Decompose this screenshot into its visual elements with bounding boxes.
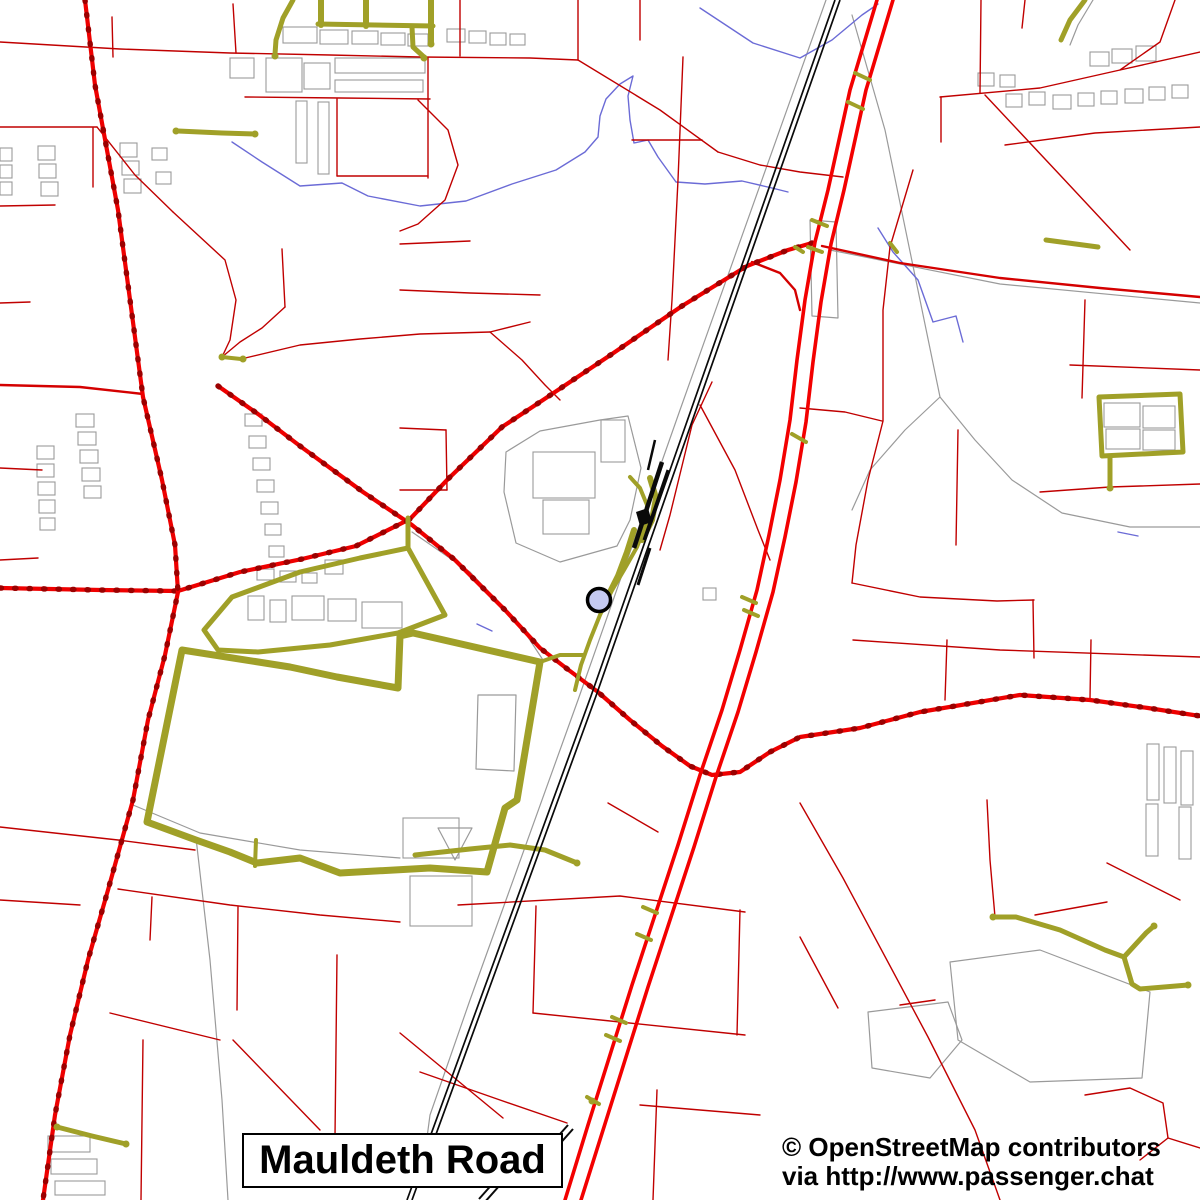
building-outline — [0, 182, 12, 195]
building-outline — [265, 524, 281, 535]
marker-layer — [588, 589, 611, 612]
building-outline — [248, 596, 264, 620]
attribution-line1: © OpenStreetMap contributors — [782, 1133, 1161, 1162]
building-outline — [41, 182, 58, 196]
building-outline — [601, 420, 625, 462]
building-outline — [122, 161, 139, 175]
station-marker[interactable] — [588, 589, 611, 612]
building-outline — [302, 573, 317, 583]
building-outline — [249, 436, 266, 448]
building-outline — [381, 33, 405, 45]
building-outline — [1006, 94, 1022, 107]
building-outline — [1104, 403, 1140, 427]
building-outline — [328, 599, 356, 621]
building-outline — [84, 486, 101, 498]
building-outline — [257, 480, 274, 492]
building-outline — [1172, 85, 1188, 98]
building-outline — [1146, 804, 1158, 856]
building-outline — [124, 179, 141, 193]
building-outline — [39, 164, 56, 178]
building-outline — [39, 500, 55, 513]
building-outline — [296, 101, 307, 163]
map-viewport[interactable]: Mauldeth Road © OpenStreetMap contributo… — [0, 0, 1200, 1200]
olive-paths-layer — [54, 0, 1192, 1148]
building-outline — [82, 468, 100, 481]
building-outline — [1090, 52, 1109, 66]
building-outline — [510, 34, 525, 45]
building-outline — [490, 33, 506, 45]
building-outline — [1179, 807, 1191, 859]
building-outline — [1106, 429, 1140, 449]
building-outline — [352, 31, 378, 44]
building-outline — [269, 546, 284, 557]
building-outline — [1000, 75, 1015, 87]
building-outline — [1136, 46, 1156, 61]
building-outline — [51, 1159, 97, 1174]
building-outline — [1112, 49, 1132, 63]
building-outline — [1143, 430, 1175, 450]
building-outline — [320, 30, 348, 44]
attribution: © OpenStreetMap contributors via http://… — [782, 1133, 1161, 1191]
attribution-line2: via http://www.passenger.chat — [782, 1162, 1161, 1191]
building-outline — [37, 446, 54, 459]
building-outline — [261, 502, 278, 514]
building-outline — [1078, 93, 1094, 106]
building-outline — [1149, 87, 1165, 100]
building-outline — [1143, 406, 1175, 428]
building-outline — [76, 414, 94, 427]
building-outline — [410, 876, 472, 926]
building-outline — [55, 1181, 105, 1195]
building-outline — [253, 458, 270, 470]
map-title-label: Mauldeth Road — [242, 1133, 563, 1188]
building-outline — [335, 58, 425, 73]
building-outline — [270, 600, 286, 622]
building-outline — [152, 148, 167, 160]
building-outline — [230, 58, 254, 78]
building-outline — [80, 450, 98, 463]
building-outline — [335, 80, 423, 92]
building-outline — [703, 588, 716, 600]
building-outline — [40, 518, 55, 530]
map-canvas[interactable] — [0, 0, 1200, 1200]
building-outline — [1125, 89, 1143, 103]
building-outline — [543, 500, 589, 534]
building-outline — [156, 172, 171, 184]
building-outline — [318, 102, 329, 174]
building-outline — [469, 31, 486, 43]
building-outline — [78, 432, 96, 445]
building-outline — [304, 63, 330, 89]
building-outline — [362, 602, 402, 628]
building-outline — [292, 596, 324, 620]
gray-paths-layer — [133, 0, 1200, 1200]
building-outline — [38, 482, 55, 495]
building-outline — [1053, 95, 1071, 109]
building-outline — [38, 146, 55, 160]
building-outline — [266, 58, 302, 92]
building-outline — [283, 27, 317, 43]
building-outline — [1029, 92, 1045, 105]
building-outline — [0, 165, 12, 178]
building-outline — [1101, 91, 1117, 104]
building-outline — [0, 148, 12, 161]
building-outline — [447, 29, 465, 42]
building-outline — [1164, 747, 1176, 803]
building-outline — [1147, 744, 1159, 800]
building-outline — [1181, 751, 1193, 805]
building-outline — [120, 143, 137, 157]
medium-roads-layer — [0, 246, 1200, 394]
building-outline — [533, 452, 595, 498]
